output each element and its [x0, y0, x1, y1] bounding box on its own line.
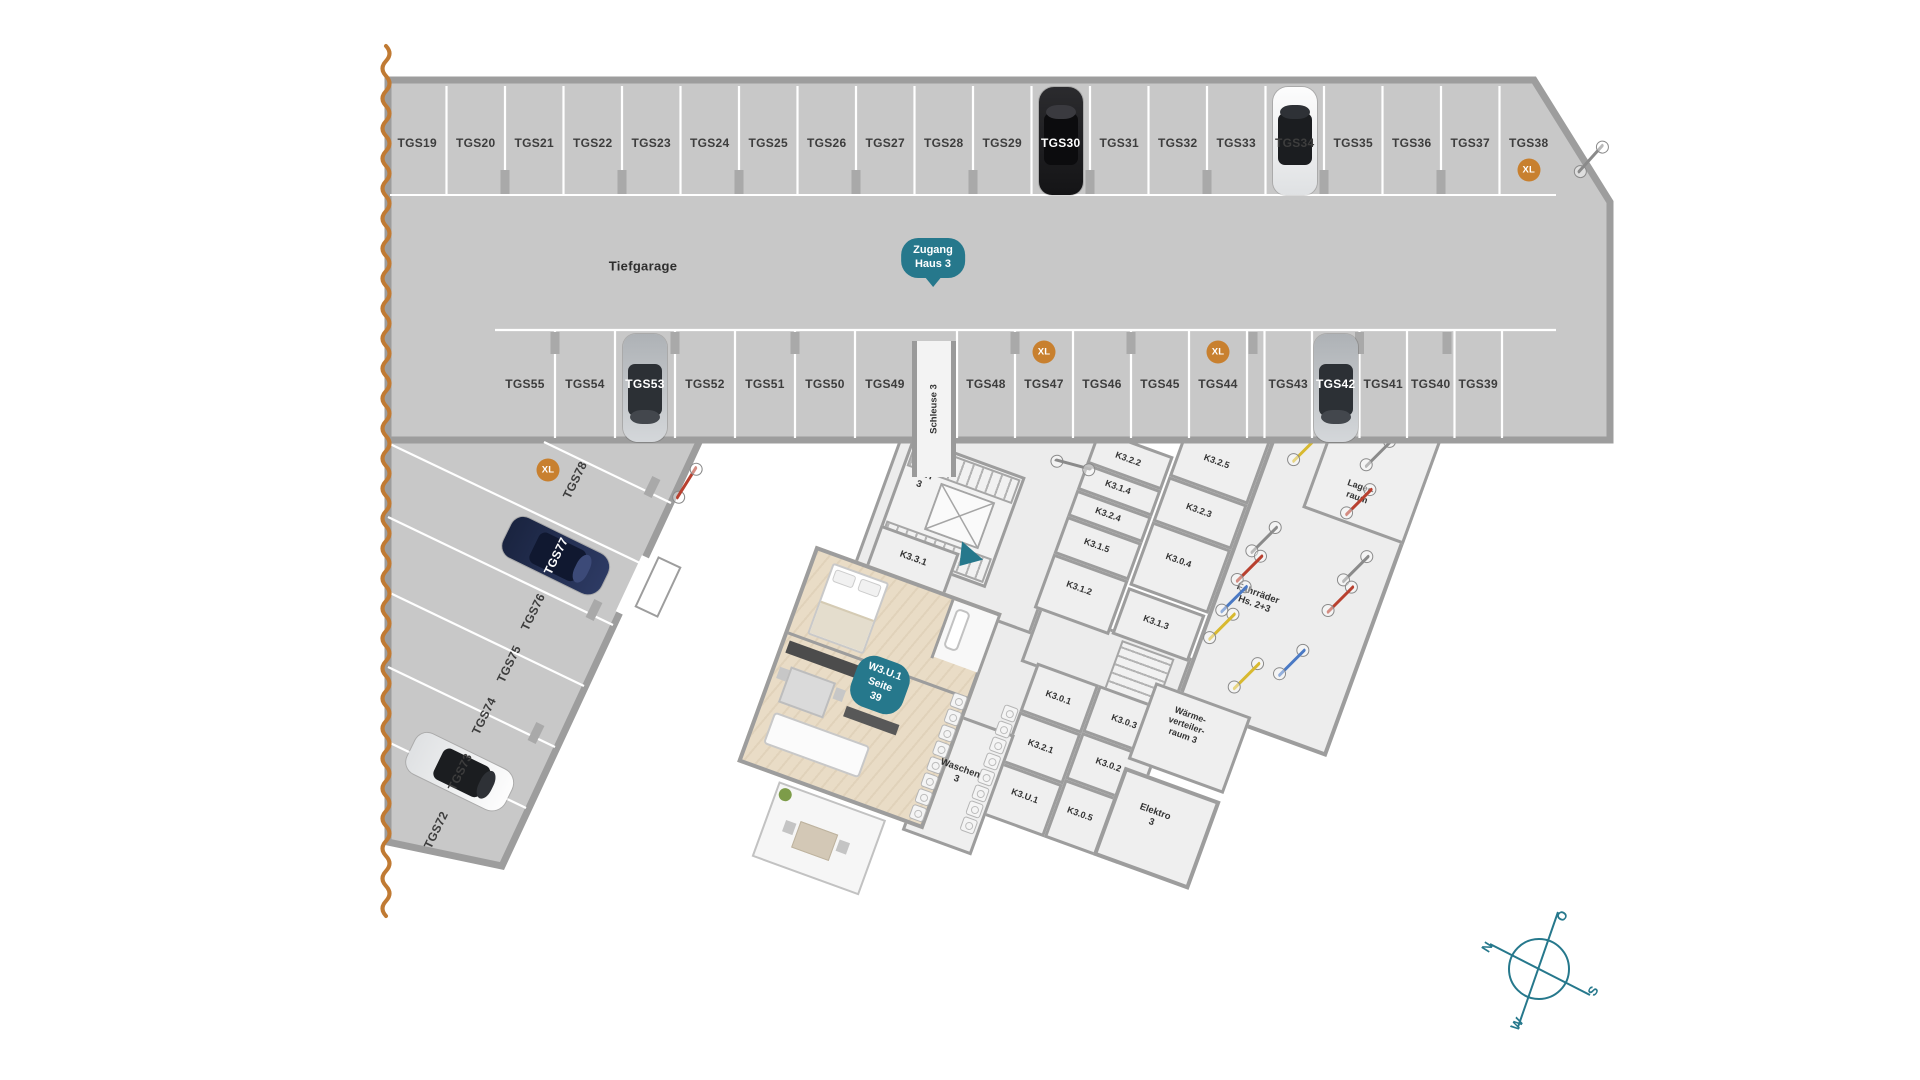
- floorplan-stage: { "labels": { "tiefgarage": "Tiefgarage"…: [0, 0, 1920, 1080]
- parking-spot-label: TGS32: [1158, 136, 1198, 150]
- parking-spot-label: TGS28: [924, 136, 964, 150]
- parking-spot-label: TGS74: [469, 695, 499, 737]
- zugang-line2: Haus 3: [915, 258, 951, 270]
- xl-badge: XL: [1207, 341, 1230, 364]
- xl-badge: XL: [537, 459, 560, 482]
- parking-spot-label: TGS22: [573, 136, 613, 150]
- parking-spot-label: TGS43: [1268, 377, 1308, 391]
- parking-spot-label: TGS29: [982, 136, 1022, 150]
- parking-spot-label: TGS20: [456, 136, 496, 150]
- xl-badge: XL: [1517, 159, 1540, 182]
- xl-badge: XL: [1033, 341, 1056, 364]
- zugang-haus3-marker[interactable]: Zugang Haus 3: [901, 238, 965, 278]
- parking-spot-label: TGS39: [1458, 377, 1498, 391]
- parking-spot-label: TGS33: [1216, 136, 1256, 150]
- parking-spot-label: TGS46: [1082, 377, 1122, 391]
- parking-spot-label: TGS36: [1392, 136, 1432, 150]
- parking-spot-label: TGS52: [685, 377, 725, 391]
- parking-spot-label: TGS23: [631, 136, 671, 150]
- parking-spot-label: TGS55: [505, 377, 545, 391]
- zugang-line1: Zugang: [913, 244, 953, 256]
- parking-spot-label: TGS49: [865, 377, 905, 391]
- parking-spot-label: TGS53: [625, 377, 665, 391]
- parking-spot-label: TGS31: [1099, 136, 1139, 150]
- parking-spot-label: TGS41: [1363, 377, 1403, 391]
- parking-spot-label: TGS26: [807, 136, 847, 150]
- marker-tail: [924, 276, 942, 287]
- parking-spot-label: TGS27: [865, 136, 905, 150]
- parking-spot-label: TGS78: [560, 459, 590, 501]
- parking-spot-label: TGS38: [1509, 136, 1549, 150]
- parking-spot-label: TGS42: [1316, 377, 1356, 391]
- parking-spot-label: TGS40: [1411, 377, 1451, 391]
- parking-spot-label: TGS76: [518, 591, 548, 633]
- parking-spot-label: TGS54: [565, 377, 605, 391]
- tiefgarage-label: Tiefgarage: [609, 259, 678, 274]
- parking-spot-label: TGS47: [1024, 377, 1064, 391]
- parking-spot-label: TGS25: [748, 136, 788, 150]
- parking-spot-label: TGS21: [514, 136, 554, 150]
- bicycle-icon: [1570, 137, 1611, 181]
- parking-spot-label: TGS48: [966, 377, 1006, 391]
- bicycle-icon: [669, 460, 705, 506]
- parking-spot-label: TGS72: [421, 809, 451, 851]
- parking-spot-label: TGS19: [397, 136, 437, 150]
- parking-spot-label: TGS45: [1140, 377, 1180, 391]
- parking-spot-label: TGS50: [805, 377, 845, 391]
- parking-spot-label: TGS75: [494, 643, 524, 685]
- parking-spot-label: TGS35: [1333, 136, 1373, 150]
- parking-spot-label: TGS34: [1275, 136, 1315, 150]
- bicycle-icon: [1049, 452, 1097, 477]
- parking-spot-label: TGS37: [1450, 136, 1490, 150]
- parking-spot-label: TGS30: [1041, 136, 1081, 150]
- labels-overlay: Tiefgarage Zugang Haus 3 TGS19TGS20TGS21…: [0, 0, 1920, 1080]
- parking-spot-label: TGS44: [1198, 377, 1238, 391]
- parking-spot-label: TGS51: [745, 377, 785, 391]
- parking-spot-label: TGS24: [690, 136, 730, 150]
